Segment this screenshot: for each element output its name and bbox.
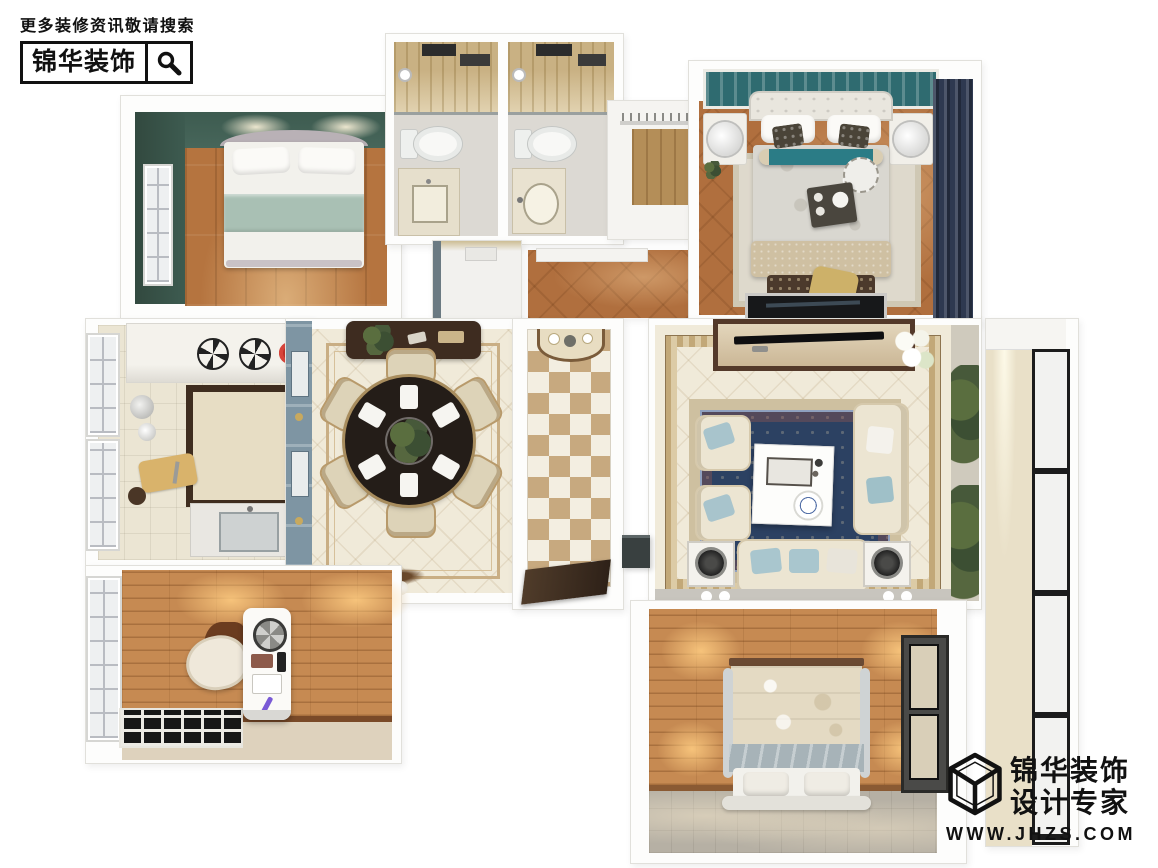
room-master-bedroom [688, 60, 982, 324]
place-setting [400, 473, 418, 497]
ceiling-lamp [465, 247, 497, 261]
room-living [648, 318, 982, 610]
table-lamp [894, 122, 928, 156]
bathroom-1 [394, 42, 498, 236]
tall-plant [951, 485, 979, 601]
coffee-tray [766, 457, 813, 487]
shower-glass-partition [394, 112, 498, 115]
bed-footboard [722, 796, 871, 810]
study-window [86, 576, 122, 742]
desk-base [243, 710, 291, 720]
faucet [247, 506, 253, 512]
shower-shelf [422, 44, 456, 56]
toilet [400, 126, 462, 160]
small-plant [703, 161, 721, 179]
utility-wall [433, 241, 441, 319]
white-pillow [866, 426, 895, 455]
shower-head [400, 70, 410, 80]
cube-logo-icon [946, 752, 1004, 821]
bedroom3-bed [729, 658, 864, 808]
blue-pillow [750, 547, 782, 574]
bed-head-rail [729, 658, 864, 666]
side-table-left [687, 541, 735, 587]
shower-glass-partition [508, 112, 614, 115]
toilet [514, 126, 576, 160]
room-bedroom-teal [120, 95, 402, 319]
place-setting [357, 453, 387, 481]
footer-brand: 锦华装饰 设计专家 WWW.JHZS.COM [946, 752, 1141, 845]
stove-burner [239, 338, 271, 370]
footer-line1: 锦华装饰 [1010, 755, 1130, 786]
bed-pillow [743, 772, 789, 796]
bowl [138, 423, 156, 441]
corridor-parquet [528, 250, 688, 318]
room-entry-hall [512, 318, 624, 610]
dark-bowl [128, 487, 146, 505]
white-pillow [826, 548, 858, 575]
master-curtain [933, 79, 973, 319]
side-table-right [863, 541, 911, 587]
armchair [695, 415, 751, 471]
blue-pillow [866, 476, 895, 505]
desk-pad [251, 654, 273, 668]
bed-footboard [226, 260, 362, 267]
tv-screen [766, 300, 860, 307]
kitchen-counter-top [126, 323, 305, 383]
desk-fan [253, 618, 287, 652]
room-dining [285, 318, 522, 604]
bedroom-teal-window [143, 164, 173, 286]
coffee-table [752, 444, 835, 527]
shoe-cabinet [622, 535, 650, 568]
room-bedroom-bottom [630, 600, 967, 864]
kitchen-window [86, 439, 120, 551]
brand-search-box: 锦华装饰 [20, 41, 193, 84]
window-bay [951, 325, 979, 601]
master-bed [751, 93, 891, 293]
blue-plate [795, 492, 822, 519]
blue-pillow [702, 421, 735, 451]
place-setting [357, 401, 387, 429]
bed-pillow [231, 147, 290, 176]
place-setting [431, 401, 461, 429]
table-centerpiece [387, 419, 431, 463]
remote [752, 346, 768, 352]
brand-name: 锦华装饰 [23, 50, 145, 75]
place-setting [431, 453, 461, 481]
breakfast-tray [806, 182, 857, 228]
grid-rug [119, 708, 243, 748]
footer-line2: 设计专家 [1010, 787, 1130, 818]
room-kitchen [85, 318, 314, 567]
place-setting [400, 385, 418, 409]
nightstand-left [703, 113, 747, 165]
desk-notebook [252, 674, 282, 694]
tall-plant [951, 365, 979, 465]
kitchen-sink [219, 512, 279, 552]
accent-pillow-dark [772, 123, 805, 149]
vanity [398, 168, 460, 236]
balcony-shelf [986, 319, 1066, 350]
armchair [695, 485, 751, 541]
bedroom3-window [901, 635, 949, 793]
shower-shelf [578, 54, 606, 66]
blender [130, 395, 154, 419]
floorplan-render: 更多装修资讯敬请搜索 锦华装饰 [0, 0, 1158, 868]
desk-phone [277, 652, 286, 672]
shower-shelf [460, 54, 490, 66]
tv-screen [734, 331, 884, 344]
footer-website: WWW.JHZS.COM [946, 824, 1141, 845]
loveseat [853, 403, 909, 535]
blue-pillow [789, 549, 819, 573]
vanity [512, 168, 566, 234]
hanger-rail [622, 113, 690, 121]
nightstand-right [889, 113, 933, 165]
kitchen-window [86, 333, 120, 437]
closet-wood-interior [632, 129, 690, 205]
magnifier-icon [148, 50, 190, 76]
speaker [874, 550, 900, 576]
brand-header: 更多装修资讯敬请搜索 锦华装饰 [20, 12, 195, 84]
closet-rod [620, 121, 692, 125]
kitchen-island [186, 385, 298, 507]
entry-pinwheel-floor [527, 329, 611, 587]
bed-duvet-paisley [731, 666, 862, 746]
corridor-cabinet [536, 248, 648, 262]
knife [173, 461, 180, 483]
accent-pillow-dark [838, 123, 870, 148]
tv-console [713, 319, 915, 371]
dining-table [345, 377, 473, 505]
dining-cabinet-wall [286, 321, 312, 567]
bed-pillow [804, 772, 850, 796]
table-lamp [708, 122, 742, 156]
study-desk [243, 608, 291, 720]
shower-head [514, 70, 524, 80]
blue-pillow [702, 493, 735, 523]
room-bathrooms [385, 33, 624, 245]
utility-room [432, 240, 522, 320]
speaker [698, 550, 724, 576]
white-flowers [891, 325, 937, 379]
bathroom-2 [508, 42, 614, 236]
master-tv-cabinet [745, 293, 887, 321]
brand-tagline: 更多装修资讯敬请搜索 [20, 12, 195, 36]
shower-shelf [536, 44, 572, 56]
stove-burner [197, 338, 229, 370]
bed-blanket-sage [224, 194, 364, 232]
bed-pillow [298, 147, 357, 175]
room-study [85, 565, 402, 764]
bedroom-teal-bed [224, 132, 364, 268]
